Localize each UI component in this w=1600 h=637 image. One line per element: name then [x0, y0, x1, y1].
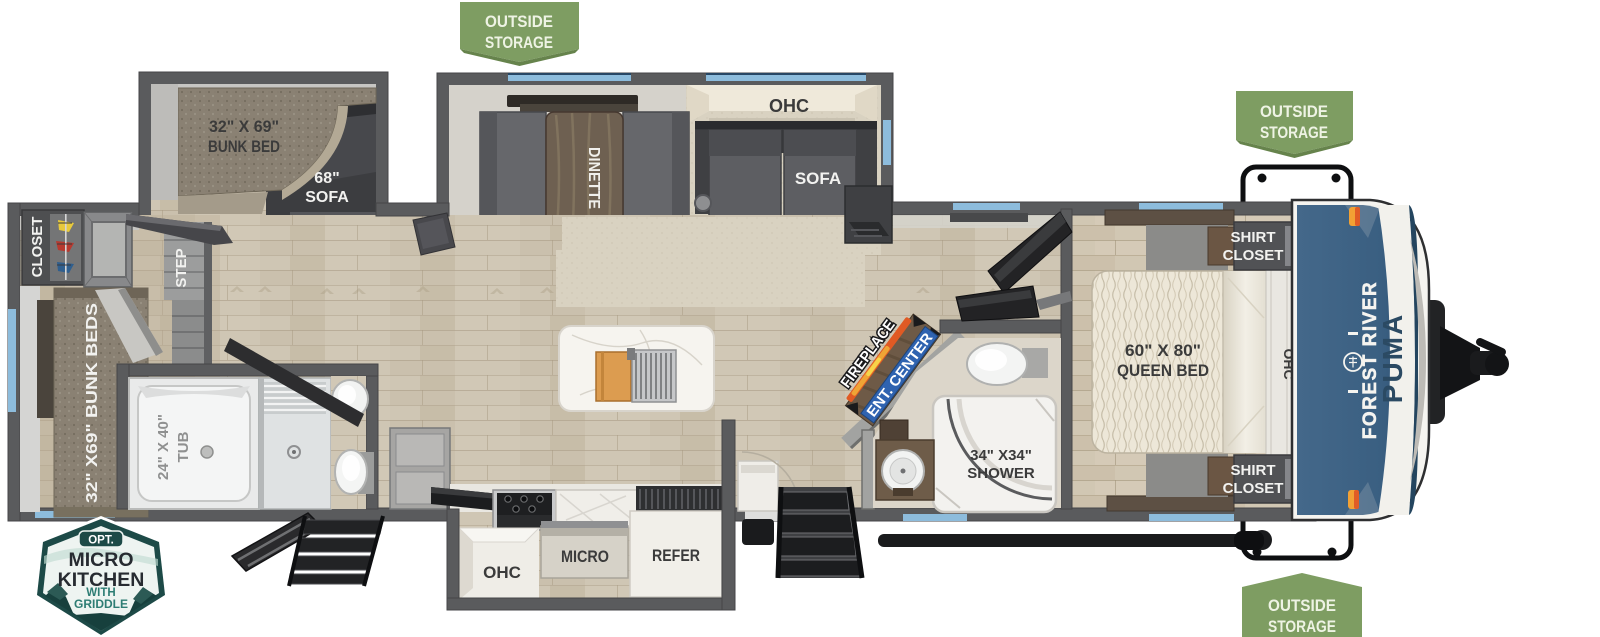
svg-text:32" X69" BUNK BEDS: 32" X69" BUNK BEDS: [84, 303, 101, 503]
svg-text:OUTSIDE: OUTSIDE: [485, 12, 553, 31]
svg-text:MICRO: MICRO: [69, 549, 134, 571]
svg-text:TUB: TUB: [175, 431, 192, 462]
svg-text:SHOWER: SHOWER: [967, 465, 1035, 482]
svg-text:68": 68": [314, 170, 339, 187]
svg-text:32" X 69": 32" X 69": [209, 117, 279, 136]
svg-text:OPT.: OPT.: [88, 535, 114, 547]
svg-text:GRIDDLE: GRIDDLE: [74, 597, 128, 611]
svg-text:CLOSET: CLOSET: [1223, 480, 1284, 497]
svg-text:QUEEN BED: QUEEN BED: [1117, 361, 1209, 380]
svg-text:OHC: OHC: [483, 563, 521, 582]
svg-text:STEP: STEP: [173, 248, 190, 287]
svg-text:OHC: OHC: [769, 96, 809, 116]
svg-text:SHIRT: SHIRT: [1231, 229, 1276, 246]
svg-text:CLOSET: CLOSET: [29, 217, 46, 278]
svg-text:OUTSIDE: OUTSIDE: [1268, 596, 1336, 615]
svg-text:CLOSET: CLOSET: [1223, 247, 1284, 264]
svg-text:STORAGE: STORAGE: [485, 33, 553, 52]
svg-text:24" X 40": 24" X 40": [155, 414, 172, 480]
svg-text:SOFA: SOFA: [305, 189, 349, 206]
svg-text:MICRO: MICRO: [561, 547, 609, 566]
svg-text:34" X34": 34" X34": [970, 447, 1032, 464]
svg-text:BUNK BED: BUNK BED: [208, 137, 280, 156]
svg-text:REFER: REFER: [652, 546, 700, 565]
svg-text:STORAGE: STORAGE: [1260, 123, 1328, 142]
svg-text:OUTSIDE: OUTSIDE: [1260, 102, 1328, 121]
svg-text:60" X 80": 60" X 80": [1125, 341, 1201, 360]
svg-text:DINETTE: DINETTE: [585, 147, 602, 209]
svg-text:STORAGE: STORAGE: [1268, 617, 1336, 636]
svg-text:SOFA: SOFA: [795, 169, 841, 188]
svg-text:PUMA: PUMA: [1377, 313, 1408, 403]
svg-text:SHIRT: SHIRT: [1231, 462, 1276, 479]
